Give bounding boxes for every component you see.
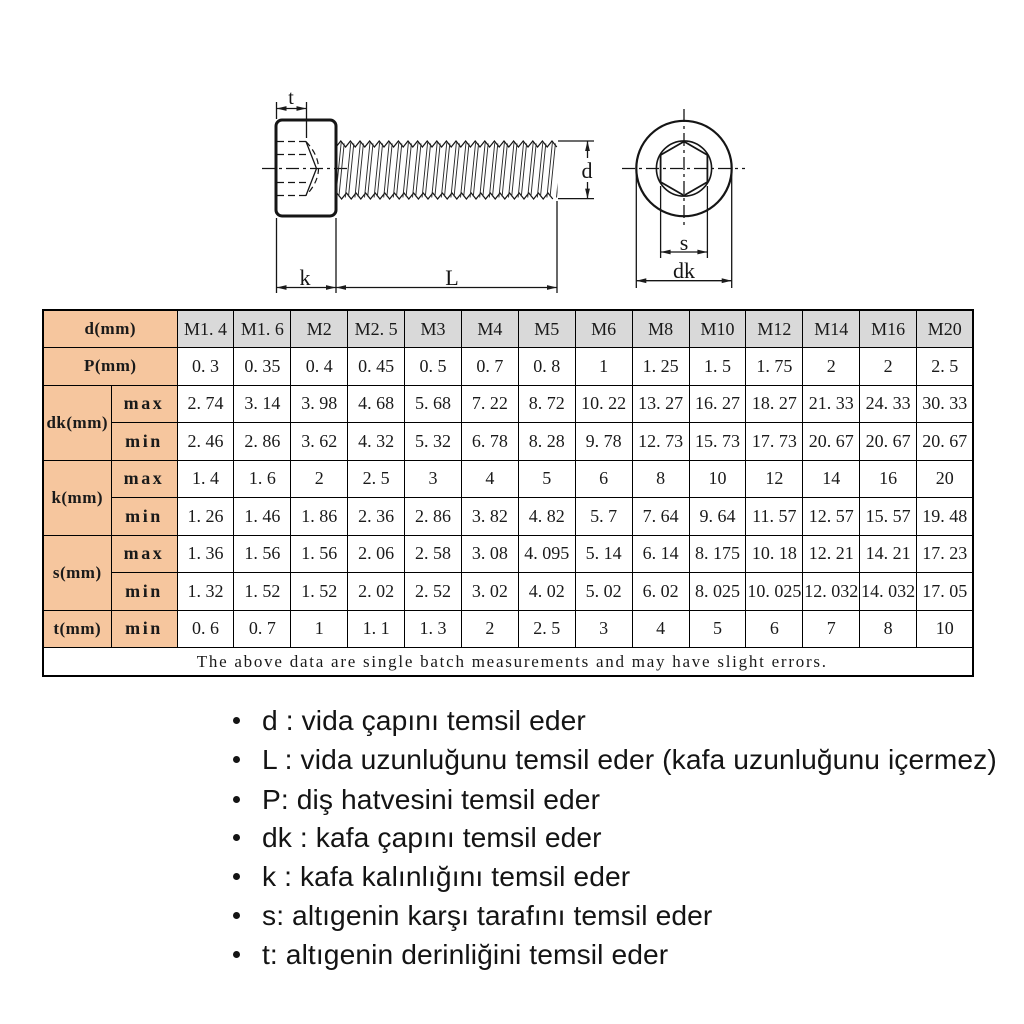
- svg-text:t: t: [288, 87, 294, 109]
- svg-text:k: k: [300, 265, 311, 290]
- svg-text:L: L: [445, 265, 458, 290]
- svg-text:d: d: [582, 158, 593, 183]
- svg-text:dk: dk: [673, 258, 695, 283]
- svg-text:s: s: [680, 230, 689, 255]
